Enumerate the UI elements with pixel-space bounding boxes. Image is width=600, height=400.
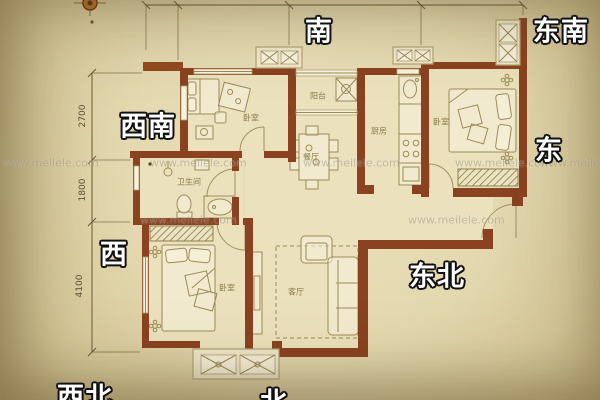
watermark: www.meilele.com [140,214,237,227]
bay-window-northeast [496,20,520,65]
room-label-bedroom-right: 卧室 [433,117,449,128]
bay-window-bottom [193,349,279,379]
watermark: www.meilele.com [2,157,99,170]
room-label-bathroom: 卫生间 [177,177,201,188]
table-icon [196,126,213,139]
watermark: www.meilele.com [150,157,247,170]
wardrobe-icon [458,169,518,186]
dimension-2700: 2700 [78,105,88,128]
room-label-bedroom-top-left: 卧室 [243,113,259,124]
dimension-4100: 4100 [75,275,85,298]
watermark: www.meilele.com [303,157,400,170]
room-label-master-bedroom: 卧室 [219,283,235,294]
direction-label-northwest: 西北 [57,376,113,400]
chair-icon [215,112,226,123]
direction-label-east: 东 [535,129,563,168]
direction-label-north: 北 [260,381,288,400]
wardrobe-icon [150,226,213,241]
room-label-kitchen: 厨房 [371,126,387,137]
bay-window-top [256,47,302,68]
armchair-icon [301,236,332,263]
direction-label-southeast: 东南 [533,10,589,49]
direction-label-southwest: 西南 [120,105,176,144]
balcony-furniture [336,78,357,101]
watermark: www.meilele.com [408,214,505,227]
dimension-1800: 1800 [78,179,88,202]
room-label-balcony: 阳台 [310,91,326,102]
room-label-living: 客厅 [288,287,304,298]
compass-icon [74,0,106,24]
kitchen-furniture [399,76,422,185]
sofa-icon [328,257,358,335]
floor-plan-graphic [0,0,600,400]
direction-label-west: 西 [100,233,128,272]
direction-label-south: 南 [305,10,333,49]
direction-label-northeast: 东北 [409,255,465,294]
floorplan-page: 南 东南 西南 东 西 东北 西北 北 卧室 阳台 厨房 卧室 餐厅 卫生间 客… [0,0,600,400]
bay-window-kitchen [393,47,433,64]
